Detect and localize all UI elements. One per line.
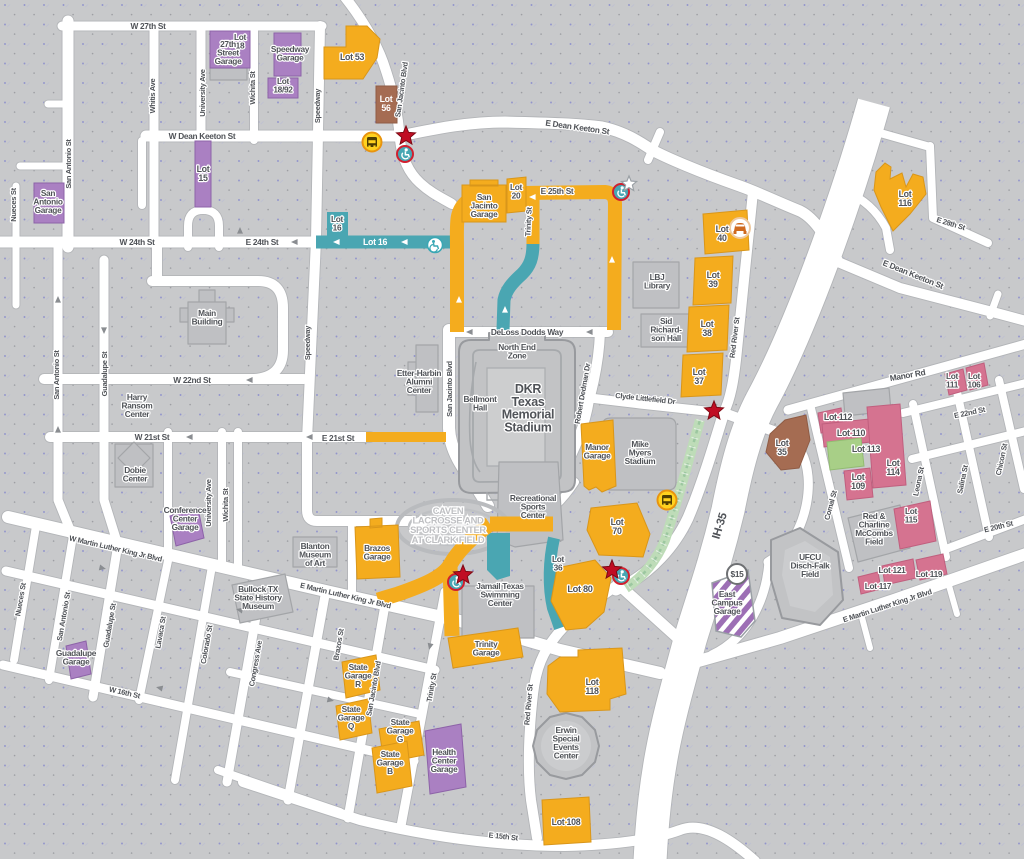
svg-text:DobieCenter: DobieCenter xyxy=(123,465,149,484)
svg-text:Lot114: Lot114 xyxy=(886,458,900,477)
svg-text:ErwinSpecialEventsCenter: ErwinSpecialEventsCenter xyxy=(553,725,580,761)
svg-text:Guadalupe St: Guadalupe St xyxy=(100,351,109,397)
svg-text:E 21st St: E 21st St xyxy=(322,433,355,443)
svg-text:Lot 121: Lot 121 xyxy=(879,565,907,575)
svg-text:TrinityGarage: TrinityGarage xyxy=(473,639,500,658)
svg-text:San Antonio St: San Antonio St xyxy=(64,139,73,189)
svg-text:Lot106: Lot106 xyxy=(968,371,982,390)
svg-text:Lot109: Lot109 xyxy=(851,472,865,491)
svg-text:W 21st St: W 21st St xyxy=(135,432,170,442)
svg-text:Lot 113: Lot 113 xyxy=(852,444,881,454)
svg-text:W 22nd St: W 22nd St xyxy=(173,375,211,385)
svg-text:E 24th St: E 24th St xyxy=(246,237,279,247)
svg-text:San Jacinto Blvd: San Jacinto Blvd xyxy=(445,360,454,416)
svg-text:Lot116: Lot116 xyxy=(898,189,912,208)
svg-text:Speedway: Speedway xyxy=(313,88,322,123)
svg-text:University Ave: University Ave xyxy=(204,479,213,526)
svg-text:Speedway: Speedway xyxy=(303,325,312,360)
svg-text:W 27th St: W 27th St xyxy=(130,21,166,31)
svg-text:Lot 53: Lot 53 xyxy=(340,52,365,62)
svg-text:Lot 117: Lot 117 xyxy=(865,581,892,591)
svg-text:Lot111: Lot111 xyxy=(946,371,959,390)
svg-text:DeLoss Dodds Way: DeLoss Dodds Way xyxy=(491,327,564,337)
svg-text:Whitis Ave: Whitis Ave xyxy=(148,78,157,113)
svg-text:Lot118: Lot118 xyxy=(585,677,599,696)
svg-text:BrazosGarage: BrazosGarage xyxy=(364,543,391,562)
svg-text:Trinity St: Trinity St xyxy=(523,206,534,236)
svg-text:ManorGarage: ManorGarage xyxy=(584,442,611,461)
svg-text:Wichita St: Wichita St xyxy=(221,488,230,522)
svg-text:Lot 80: Lot 80 xyxy=(567,584,592,594)
svg-text:$15: $15 xyxy=(731,569,745,579)
svg-text:Wichita St: Wichita St xyxy=(248,71,257,105)
svg-text:W 24th St: W 24th St xyxy=(119,237,155,247)
svg-text:Lot115: Lot115 xyxy=(905,506,918,525)
svg-text:San Antonio St: San Antonio St xyxy=(52,350,61,400)
svg-text:University Ave: University Ave xyxy=(198,69,207,116)
svg-text:W Dean Keeton St: W Dean Keeton St xyxy=(169,131,236,141)
svg-text:Lot 112: Lot 112 xyxy=(824,412,853,422)
svg-text:E 25th St: E 25th St xyxy=(541,186,574,196)
svg-text:HealthCenterGarage: HealthCenterGarage xyxy=(431,747,458,774)
svg-text:Lot 16: Lot 16 xyxy=(363,237,388,247)
svg-text:Lot 119: Lot 119 xyxy=(916,569,943,579)
svg-text:Nueces St: Nueces St xyxy=(9,187,18,221)
svg-text:Lot 110: Lot 110 xyxy=(837,428,866,438)
svg-text:Lot 108: Lot 108 xyxy=(552,817,581,827)
